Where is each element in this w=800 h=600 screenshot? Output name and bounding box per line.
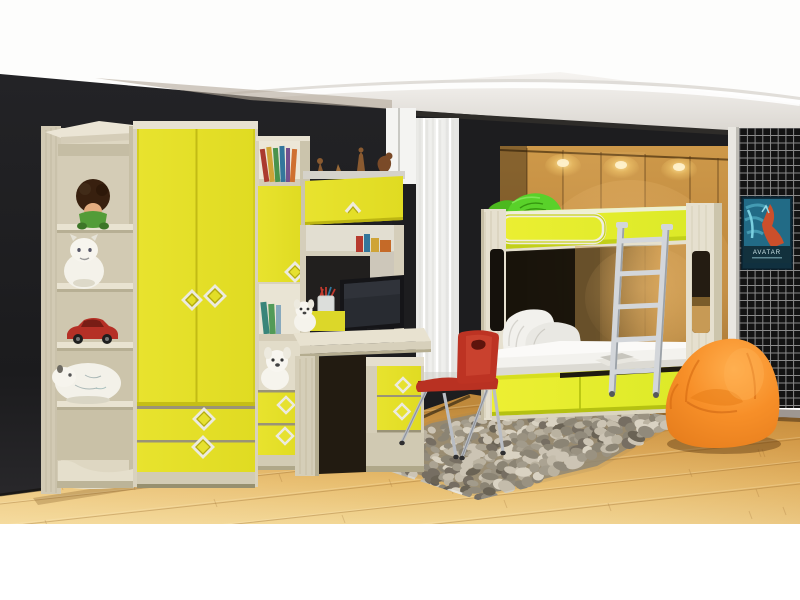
svg-text:AVATAR: AVATAR [753, 250, 781, 256]
